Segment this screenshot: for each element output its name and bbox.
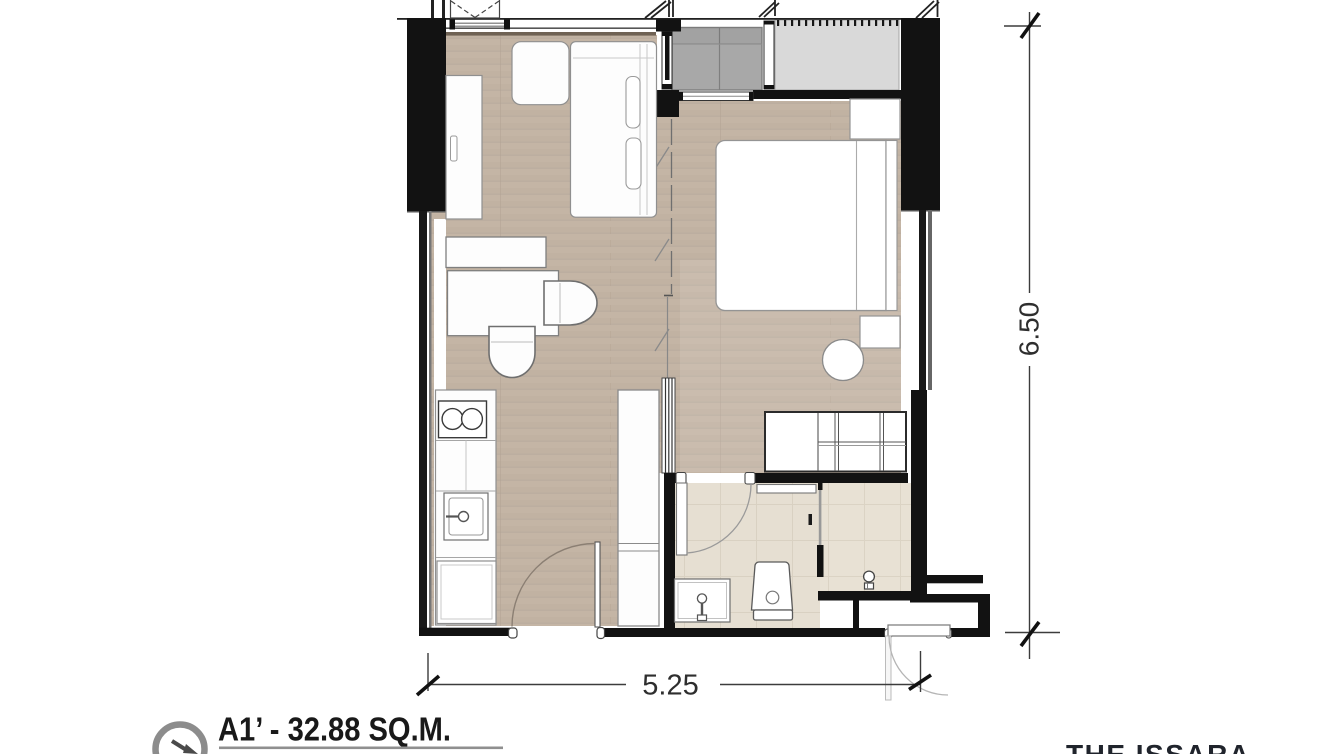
svg-text:A1’ - 32.88 SQ.M.: A1’ - 32.88 SQ.M. xyxy=(218,712,451,749)
svg-text:THE ISSARA: THE ISSARA xyxy=(1066,739,1251,754)
svg-text:5.25: 5.25 xyxy=(642,670,698,702)
svg-text:6.50: 6.50 xyxy=(1013,302,1044,357)
